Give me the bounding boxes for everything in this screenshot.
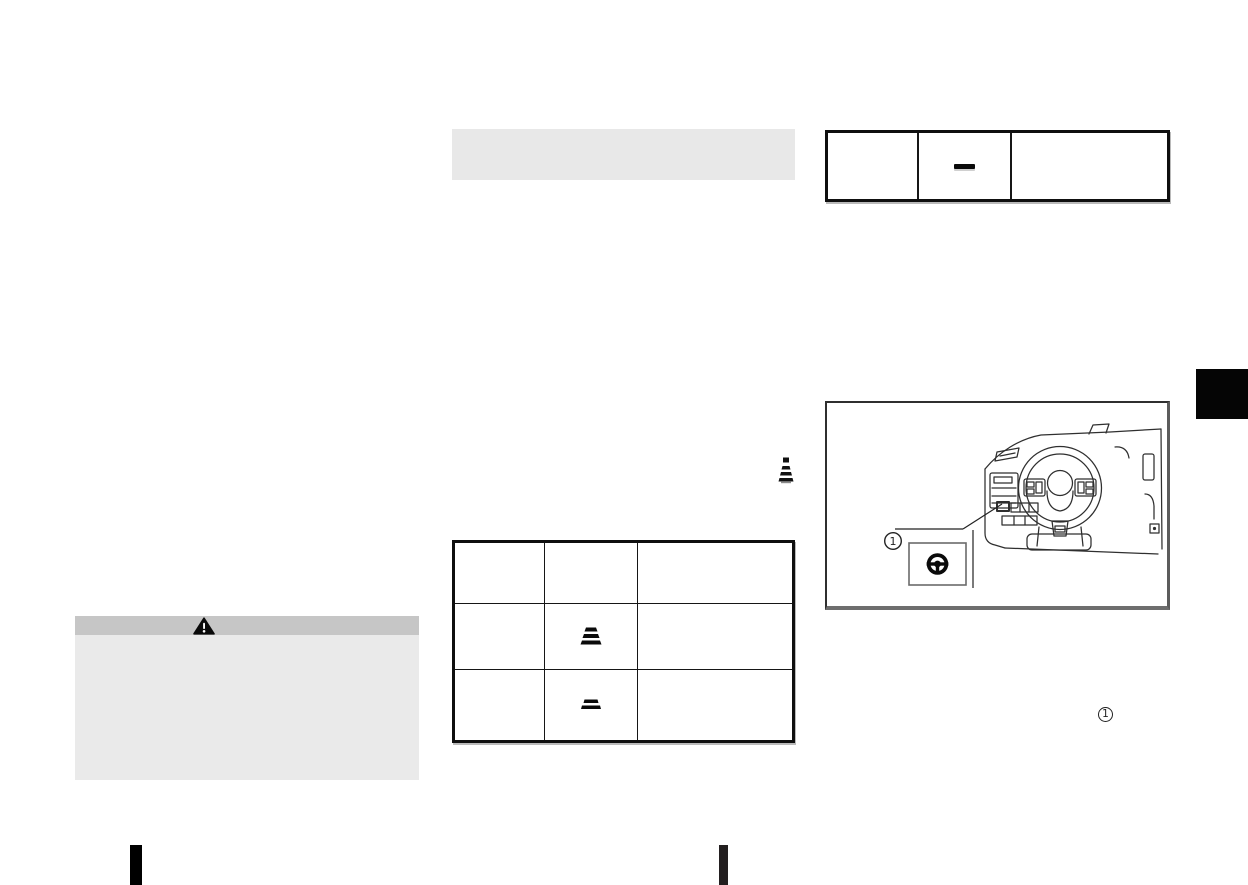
- dashboard-line-art: 1: [827, 403, 1167, 606]
- section-heading-bar: [452, 129, 795, 180]
- heat-indicator-icon: [778, 456, 794, 484]
- dashboard-outline: [985, 424, 1162, 554]
- heated-steering-wheel-icon: [927, 553, 949, 575]
- table-cell: [545, 543, 638, 604]
- heat-level-high-icon: [579, 627, 603, 646]
- table-cell: [638, 670, 792, 740]
- warning-body: [75, 635, 419, 780]
- warning-triangle-icon: [193, 617, 215, 635]
- table-cell: [545, 604, 638, 670]
- figure-dashboard-illustration: 1: [825, 401, 1170, 610]
- chapter-index-tab: [1196, 369, 1248, 419]
- print-fold-marker: [719, 845, 728, 885]
- dash-symbol: [954, 164, 975, 169]
- table-cell: [828, 133, 919, 199]
- table-cell: [1012, 133, 1167, 199]
- table-cell: [455, 604, 545, 670]
- footnote-number-circle: 1: [1098, 707, 1113, 722]
- table-cell: [455, 670, 545, 740]
- heat-level-low-icon: [579, 699, 603, 711]
- table-cell: [455, 543, 545, 604]
- table-cell: [638, 604, 792, 670]
- heat-level-table: [452, 540, 795, 743]
- warning-box: [75, 616, 419, 780]
- table-cell: [638, 543, 792, 604]
- table-cell: [919, 133, 1012, 199]
- table-cell: [545, 670, 638, 740]
- print-fold-marker: [130, 845, 142, 885]
- indicator-table: [825, 130, 1170, 202]
- warning-header: [75, 616, 419, 635]
- figure-callout-number: 1: [890, 535, 897, 548]
